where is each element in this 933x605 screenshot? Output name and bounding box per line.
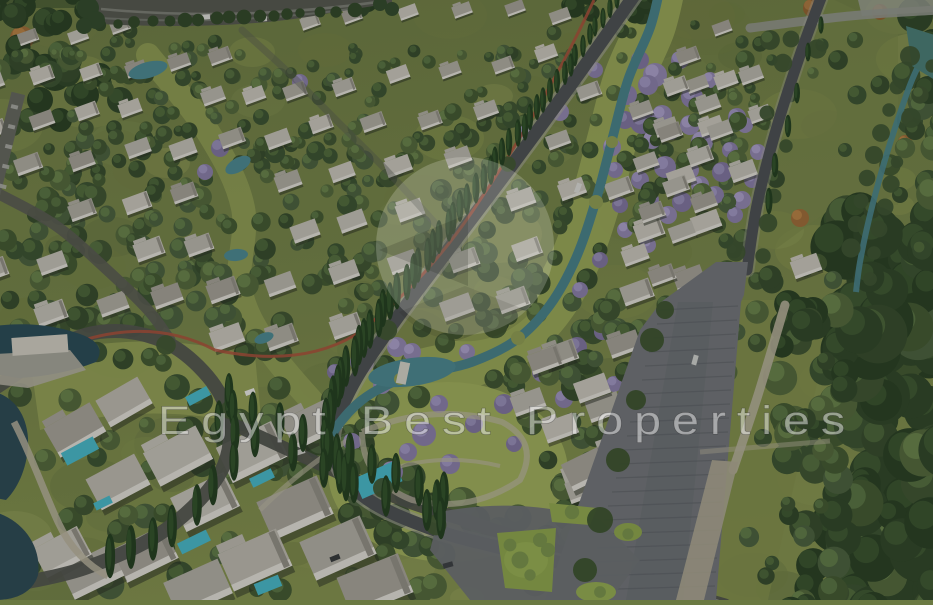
svg-text:Egypt Best Properties: Egypt Best Properties [158,399,856,443]
